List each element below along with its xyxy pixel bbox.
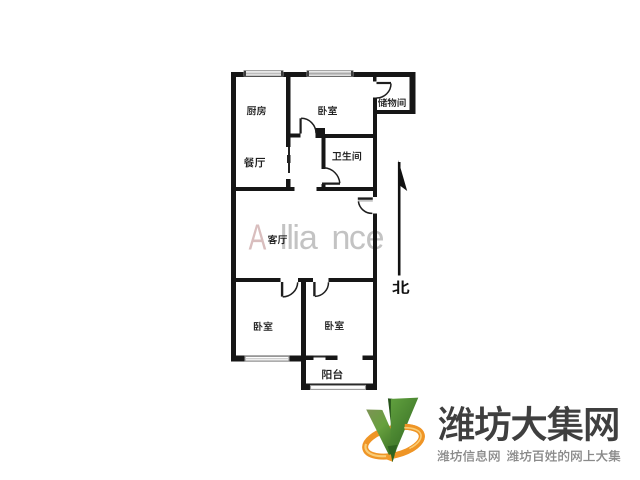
svg-text:A: A — [249, 218, 267, 258]
svg-text:lliance: lliance — [280, 219, 385, 257]
